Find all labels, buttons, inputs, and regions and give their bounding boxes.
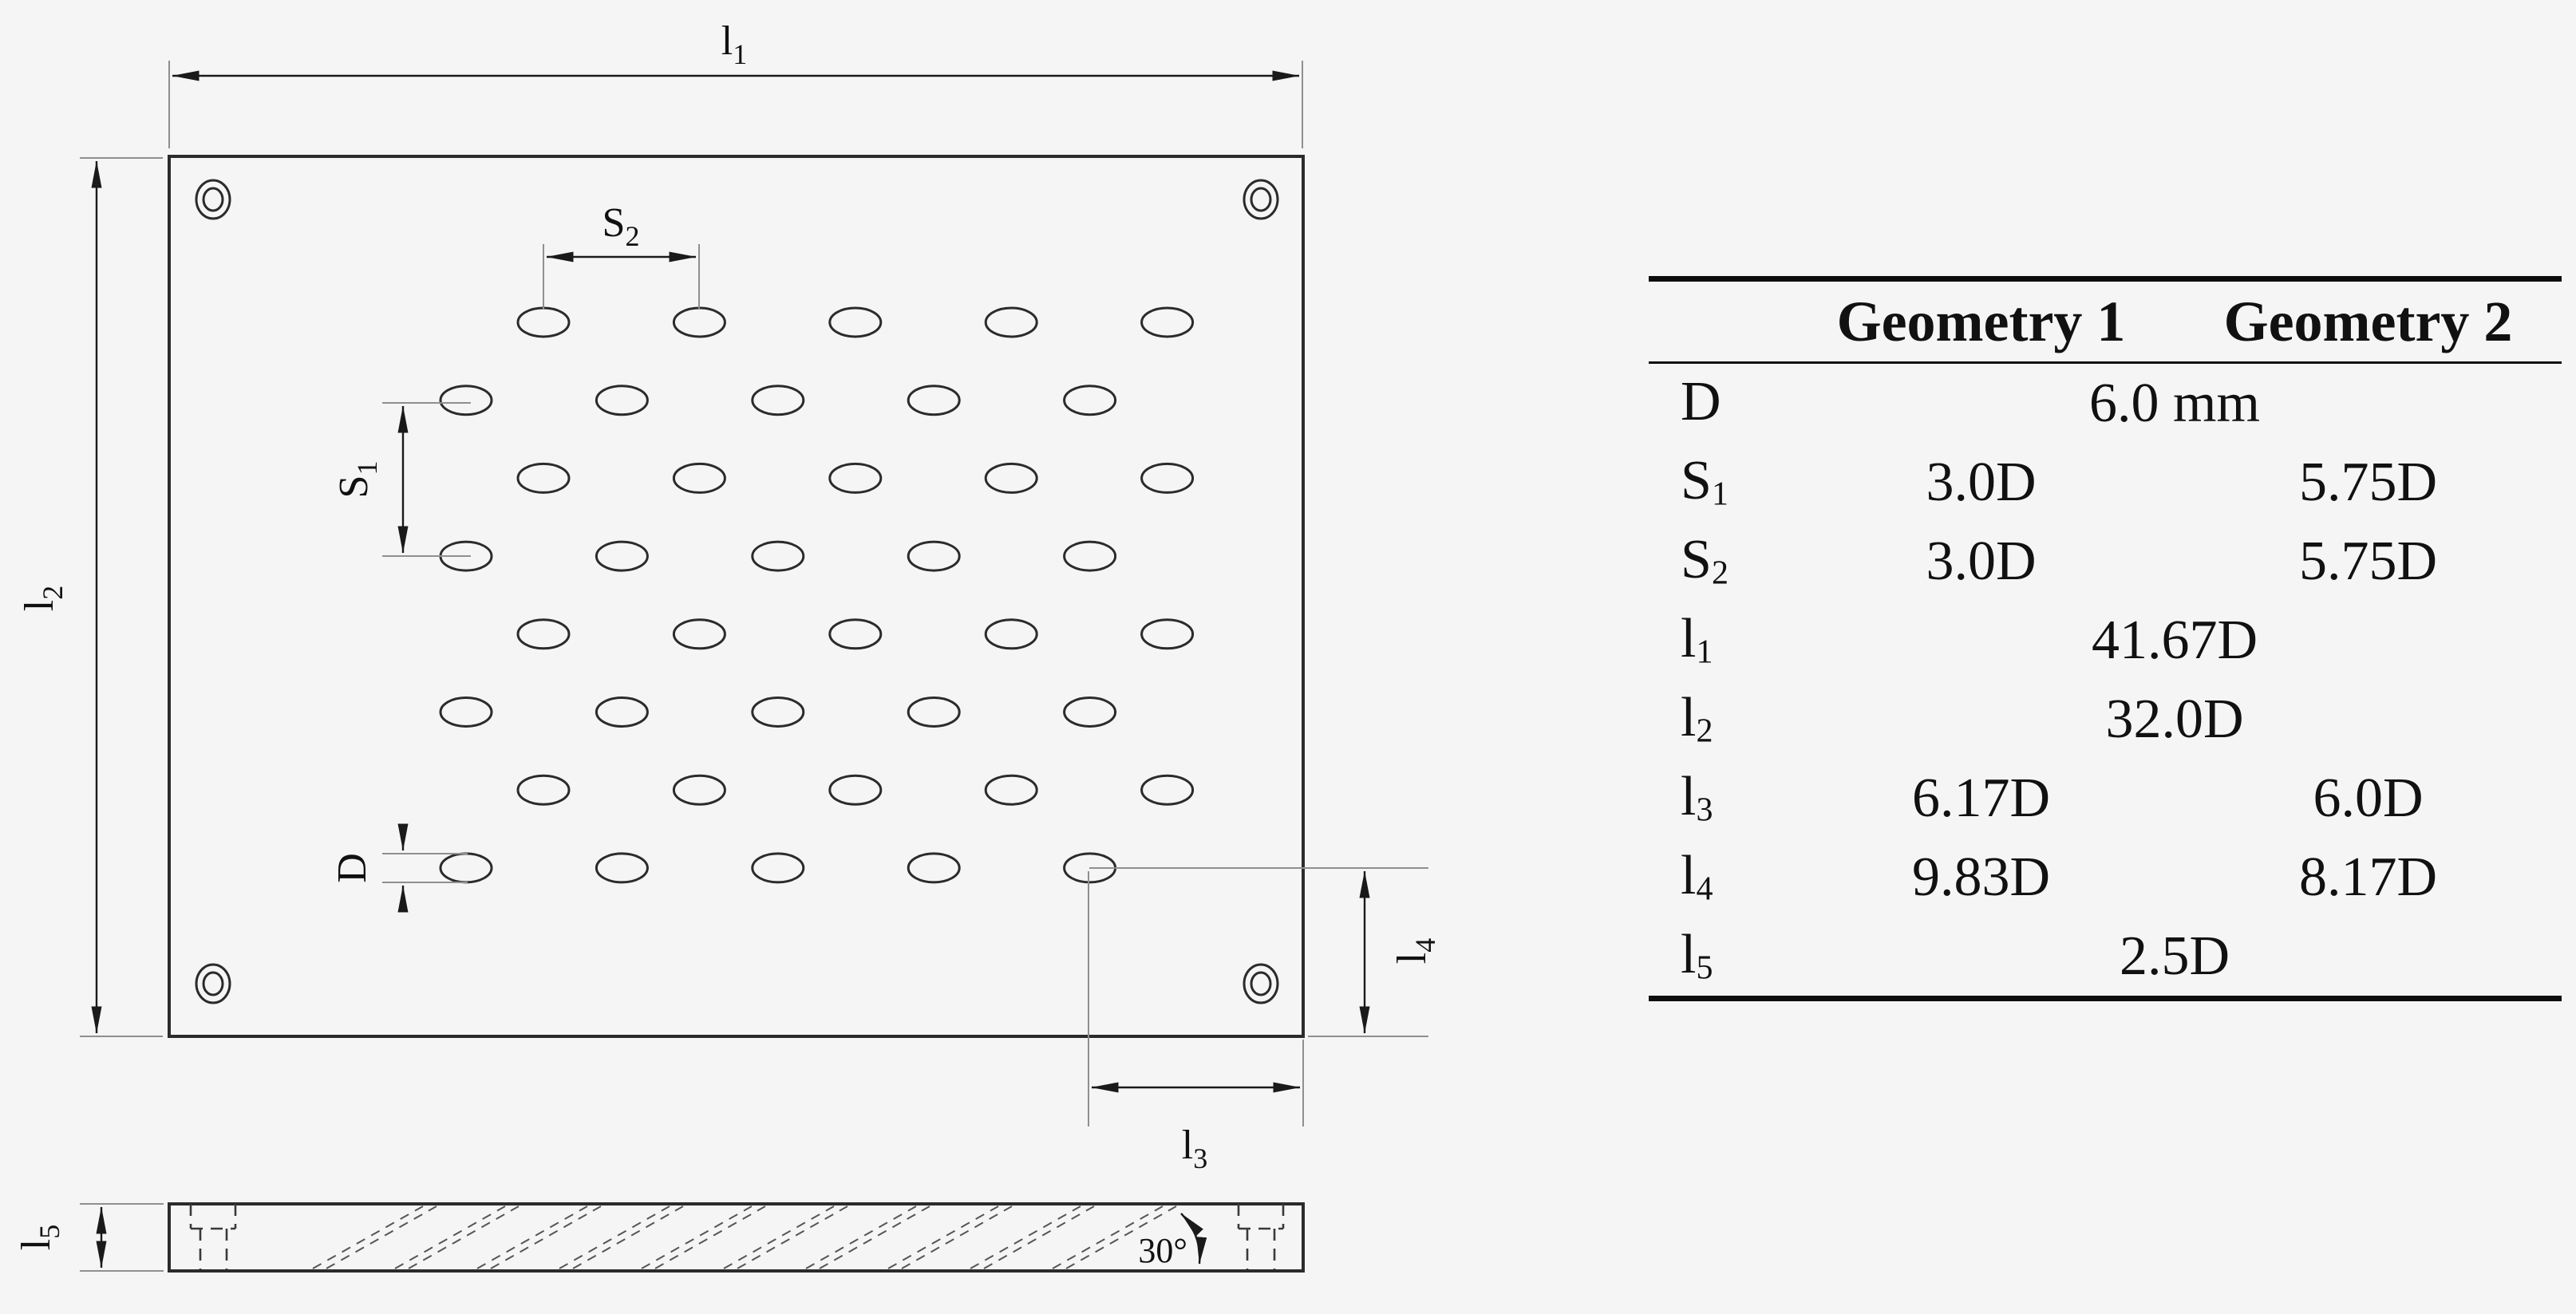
label-30deg: 30° [1138, 1231, 1187, 1270]
table-row-l3: l3 6.17D 6.0D [1649, 759, 2562, 838]
label-l1: l1 [721, 18, 747, 70]
orifice-hole [986, 464, 1037, 492]
orifice-hole [908, 542, 959, 570]
orifice-hole [441, 386, 492, 415]
row-value-geometry1: 3.0D [1788, 455, 2175, 511]
dimension-l4: l4 [1089, 868, 1441, 1036]
orifice-hole [1065, 386, 1116, 415]
hatch-line [559, 1206, 670, 1269]
table-row-S1: S1 3.0D 5.75D [1649, 443, 2562, 522]
orifice-hole [596, 542, 647, 570]
dimension-d: D [330, 830, 468, 906]
corner-mounting-hole [196, 965, 230, 1003]
hatch-line [806, 1206, 916, 1269]
orifice-hole [908, 386, 959, 415]
hatch-line [970, 1206, 1081, 1269]
label-l5: l5 [14, 1225, 65, 1250]
countersunk-screw-right [1239, 1204, 1283, 1269]
table-row-l5: l5 2.5D [1649, 917, 2562, 996]
hatch-line [724, 1206, 834, 1269]
table-row-l1: l1 41.67D [1649, 601, 2562, 680]
corner-mounting-hole [196, 180, 230, 219]
hatch-line [902, 1206, 1012, 1269]
hatch-line [313, 1206, 423, 1269]
row-value-shared: 2.5D [1788, 929, 2562, 985]
hatch-line [655, 1206, 765, 1269]
table-row-l2: l2 32.0D [1649, 680, 2562, 759]
geometry-table: Geometry 1 Geometry 2 D 6.0 mm S1 3.0D 5… [1649, 276, 2562, 1001]
plate-top-view [169, 156, 1303, 1036]
dimension-l5: l5 [14, 1204, 164, 1271]
row-value-geometry2: 5.75D [2175, 534, 2562, 590]
orifice-hole [830, 775, 881, 804]
orifice-hole [986, 775, 1037, 804]
table-rule-top [1649, 276, 2562, 282]
label-l3: l3 [1182, 1123, 1207, 1174]
table-row-S2: S2 3.0D 5.75D [1649, 522, 2562, 601]
orifice-hole [674, 620, 725, 649]
orifice-hole [596, 854, 647, 882]
dimension-l3: l3 [1088, 871, 1303, 1174]
orifice-hole [986, 308, 1037, 337]
orifice-hole [518, 308, 569, 337]
orifice-hole [1065, 542, 1116, 570]
orifice-hole [1065, 698, 1116, 727]
section-hatching [313, 1206, 1176, 1269]
figure-canvas: l1 l2 S2 S1 D [0, 0, 2576, 1314]
table-header-row: Geometry 1 Geometry 2 [1649, 282, 2562, 361]
hatch-line [573, 1206, 683, 1269]
row-value-shared: 6.0 mm [1788, 376, 2562, 432]
row-value-geometry2: 8.17D [2175, 850, 2562, 906]
dimension-s1: S1 [331, 403, 471, 556]
orifice-hole [596, 386, 647, 415]
angle-dimension-30deg: 30° [1138, 1213, 1199, 1270]
dimension-s2: S2 [543, 200, 699, 310]
orifice-hole [1142, 308, 1193, 337]
orifice-hole [674, 464, 725, 492]
hatch-line [984, 1206, 1094, 1269]
corner-mounting-hole [1244, 180, 1278, 219]
side-view-outline [169, 1204, 1303, 1271]
hatch-line [737, 1206, 847, 1269]
orifice-hole [518, 620, 569, 649]
orifice-hole [1142, 775, 1193, 804]
orifice-hole [674, 775, 725, 804]
orifice-hole [1142, 620, 1193, 649]
dimension-l1: l1 [169, 18, 1302, 148]
hatch-line [491, 1206, 601, 1269]
orifice-hole [908, 854, 959, 882]
table-header-geometry1: Geometry 1 [1788, 293, 2175, 350]
table-header-geometry2: Geometry 2 [2175, 293, 2562, 350]
orifice-hole [753, 698, 804, 727]
row-value-shared: 32.0D [1788, 692, 2562, 748]
orifice-hole-grid [441, 308, 1193, 882]
row-value-geometry2: 5.75D [2175, 455, 2562, 511]
orifice-hole [830, 464, 881, 492]
row-label: l3 [1649, 769, 1788, 827]
row-label: S1 [1649, 453, 1788, 511]
orifice-hole [518, 464, 569, 492]
hatch-line [395, 1206, 505, 1269]
row-value-geometry1: 9.83D [1788, 850, 2175, 906]
orifice-hole [830, 308, 881, 337]
label-s2: S2 [603, 200, 640, 252]
countersunk-screw-left [191, 1204, 235, 1269]
orifice-hole [830, 620, 881, 649]
orifice-hole [753, 386, 804, 415]
orifice-hole [518, 775, 569, 804]
hatch-line [888, 1206, 998, 1269]
row-value-shared: 41.67D [1788, 613, 2562, 669]
label-l4: l4 [1389, 938, 1441, 964]
orifice-hole [1142, 464, 1193, 492]
row-label: l5 [1649, 927, 1788, 985]
row-label: l4 [1649, 848, 1788, 906]
orifice-hole [674, 308, 725, 337]
table-row-D: D 6.0 mm [1649, 364, 2562, 443]
orifice-hole [908, 698, 959, 727]
hatch-line [820, 1206, 930, 1269]
row-label: l2 [1649, 690, 1788, 748]
corner-mounting-hole [1244, 965, 1278, 1003]
orifice-hole [986, 620, 1037, 649]
row-label: l1 [1649, 611, 1788, 669]
plate-outline [169, 156, 1303, 1036]
hatch-line [642, 1206, 752, 1269]
dimension-l2: l2 [17, 158, 163, 1036]
table-row-l4: l4 9.83D 8.17D [1649, 838, 2562, 917]
orifice-hole [441, 854, 492, 882]
label-l2: l2 [17, 586, 69, 611]
orifice-hole [441, 698, 492, 727]
hatch-line [477, 1206, 587, 1269]
plate-side-view: l5 30° [14, 1204, 1303, 1271]
hatch-line [326, 1206, 437, 1269]
row-value-geometry2: 6.0D [2175, 771, 2562, 827]
label-d: D [330, 853, 375, 883]
label-s1: S1 [331, 461, 383, 499]
row-value-geometry1: 3.0D [1788, 534, 2175, 590]
table-rule-bottom [1649, 996, 2562, 1001]
row-label: D [1649, 374, 1788, 432]
row-value-geometry1: 6.17D [1788, 771, 2175, 827]
orifice-hole [596, 698, 647, 727]
row-label: S2 [1649, 532, 1788, 590]
orifice-hole [753, 542, 804, 570]
orifice-hole [753, 854, 804, 882]
hatch-line [409, 1206, 519, 1269]
